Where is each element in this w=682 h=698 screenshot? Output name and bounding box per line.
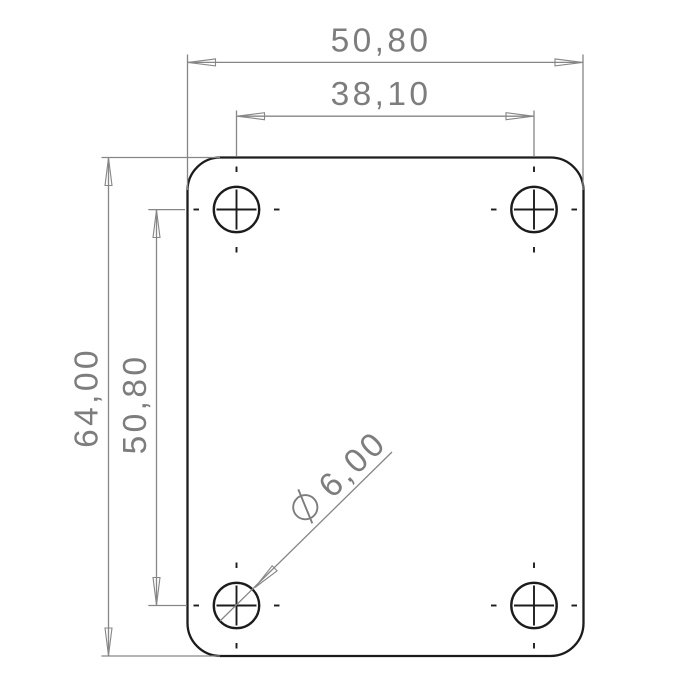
svg-text:50,80: 50,80: [331, 23, 432, 60]
svg-text:38,10: 38,10: [331, 76, 432, 113]
svg-text:50,80: 50,80: [117, 354, 154, 455]
svg-text:64,00: 64,00: [69, 347, 106, 448]
